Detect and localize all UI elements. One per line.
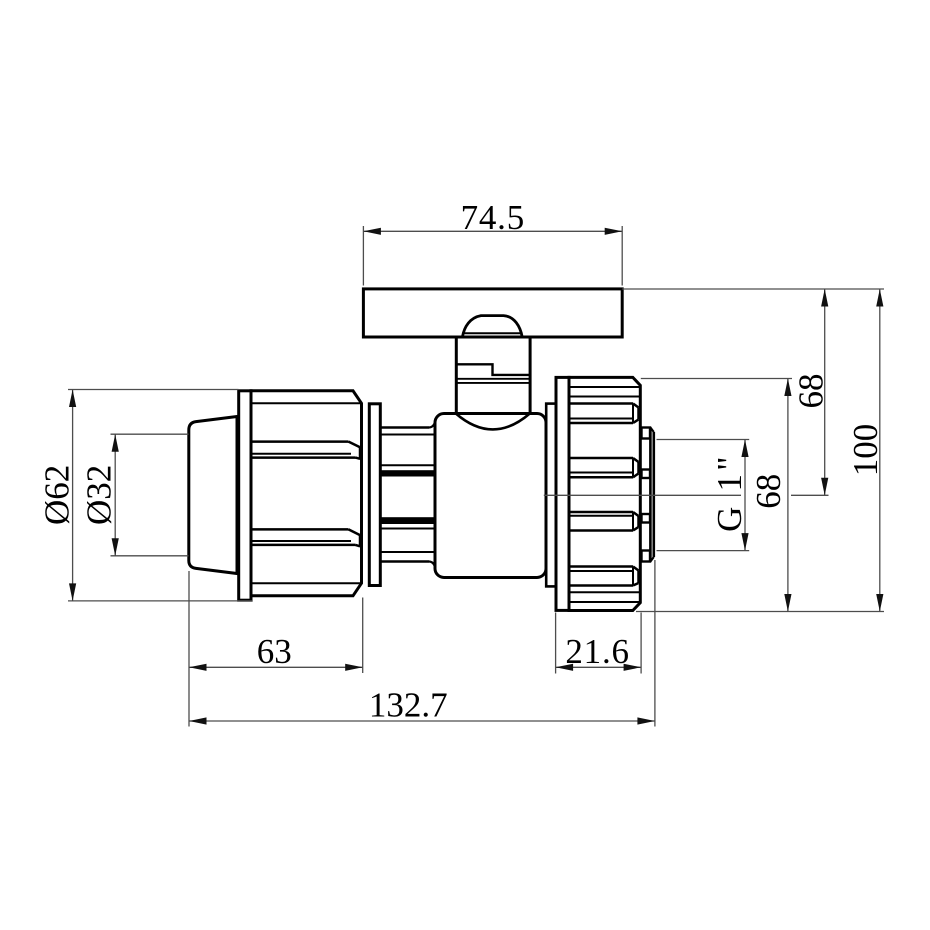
svg-text:Ø62: Ø62 — [38, 465, 77, 525]
svg-text:100: 100 — [846, 424, 885, 477]
svg-text:68: 68 — [749, 474, 788, 509]
svg-text:68: 68 — [792, 374, 831, 409]
svg-text:G 1": G 1" — [710, 453, 749, 532]
svg-text:21.6: 21.6 — [565, 632, 629, 671]
svg-text:132.7: 132.7 — [369, 686, 448, 725]
svg-text:Ø32: Ø32 — [80, 465, 119, 525]
svg-text:63: 63 — [257, 632, 292, 671]
svg-text:74.5: 74.5 — [461, 198, 525, 237]
